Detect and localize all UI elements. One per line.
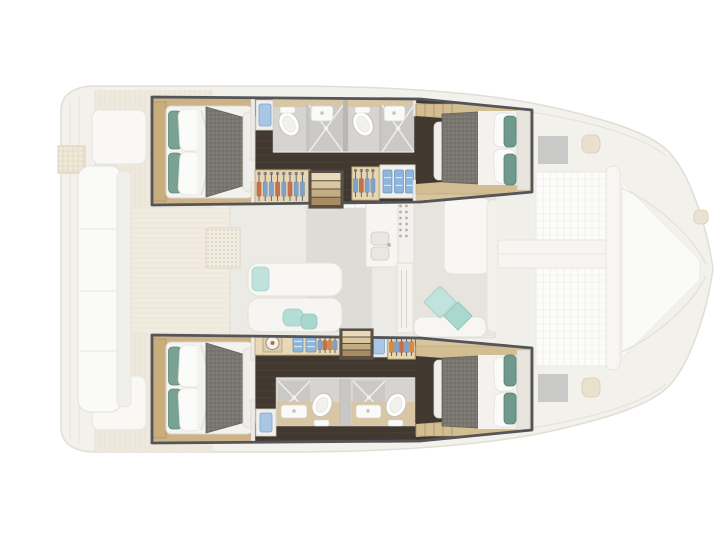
foredeck — [496, 168, 538, 370]
galley-sink-basin-1 — [371, 232, 389, 245]
bow-fitting-pad — [694, 210, 708, 224]
port-washstand-basin-icon — [259, 104, 271, 126]
stbd-porthole-badge-dot — [271, 341, 275, 345]
deck-pad-stbd — [582, 378, 600, 397]
galley-sink-basin-2 — [371, 247, 389, 260]
port-aft-wall-lower — [251, 182, 255, 205]
stbd-washstand-basin-aft-icon — [260, 413, 272, 432]
port-fwd-blanket — [442, 112, 478, 184]
stbd-aft-wall-lower — [251, 400, 255, 443]
stbd-folded-clothes-1 — [293, 336, 303, 352]
port-aft-wall-upper — [251, 98, 255, 160]
port-bathroom-1-wall — [306, 105, 309, 152]
floorplan — [0, 0, 720, 540]
port-aft-headboard — [153, 102, 166, 201]
port-aft-blanket — [206, 107, 249, 197]
cockpit-teak-floor — [122, 208, 234, 334]
chaise-pillow-1 — [252, 267, 269, 291]
port-sink-1-drain — [320, 111, 324, 115]
stbd-fwd-blanket — [442, 356, 478, 428]
port-toilet-1-tank — [280, 107, 295, 113]
stbd-aft-blanket — [206, 343, 249, 433]
stbd-aft-headboard — [153, 339, 166, 438]
stbd-toilet-2-tank — [388, 420, 403, 426]
floorplan-canvas — [0, 0, 720, 540]
stbd-sink-2-drain — [366, 409, 370, 413]
port-fwd-teal-pillow-2 — [504, 154, 516, 185]
port-fwd-wall-upper — [413, 98, 416, 116]
port-bathroom-2-wall — [379, 105, 382, 152]
port-folded-clothes-1 — [383, 170, 392, 193]
port-toilet-2-tank — [355, 107, 370, 113]
lounge-perforated-panel — [206, 228, 240, 268]
cockpit-bench-backrest — [117, 171, 131, 407]
forebeam — [606, 166, 620, 370]
port-sink-2-drain — [392, 111, 396, 115]
stbd-bathroom-divider — [340, 378, 350, 426]
port-bathroom-divider — [343, 98, 348, 152]
dinette-table — [444, 198, 490, 274]
galley-lower-counter — [397, 263, 413, 333]
port-folded-clothes-3 — [406, 170, 414, 193]
stbd-fwd-headboard — [517, 350, 530, 430]
stbd-sink-1-drain — [292, 409, 296, 413]
deck-pad-port — [582, 135, 600, 153]
port-fwd-headboard — [517, 110, 530, 190]
liferaft-locker — [58, 146, 85, 173]
galley-faucet-icon — [387, 243, 391, 247]
chaise-pillow-3 — [301, 314, 317, 329]
stbd-folded-clothes-2 — [306, 336, 316, 352]
stbd-toilet-1-tank — [314, 420, 329, 426]
deck-hatch-stbd — [538, 374, 568, 402]
cockpit-bench — [78, 166, 122, 412]
stbd-aft-wall-upper — [251, 335, 255, 360]
port-folded-clothes-2 — [395, 170, 404, 193]
chaise-pillow-2 — [283, 309, 303, 326]
stbd-fwd-teal-pillow-2 — [504, 393, 516, 424]
deckhouse-roof-port — [92, 110, 146, 164]
deck-hatch-port — [538, 136, 568, 164]
stbd-fwd-teal-pillow-1 — [504, 355, 516, 386]
port-fwd-teal-pillow-1 — [504, 116, 516, 147]
